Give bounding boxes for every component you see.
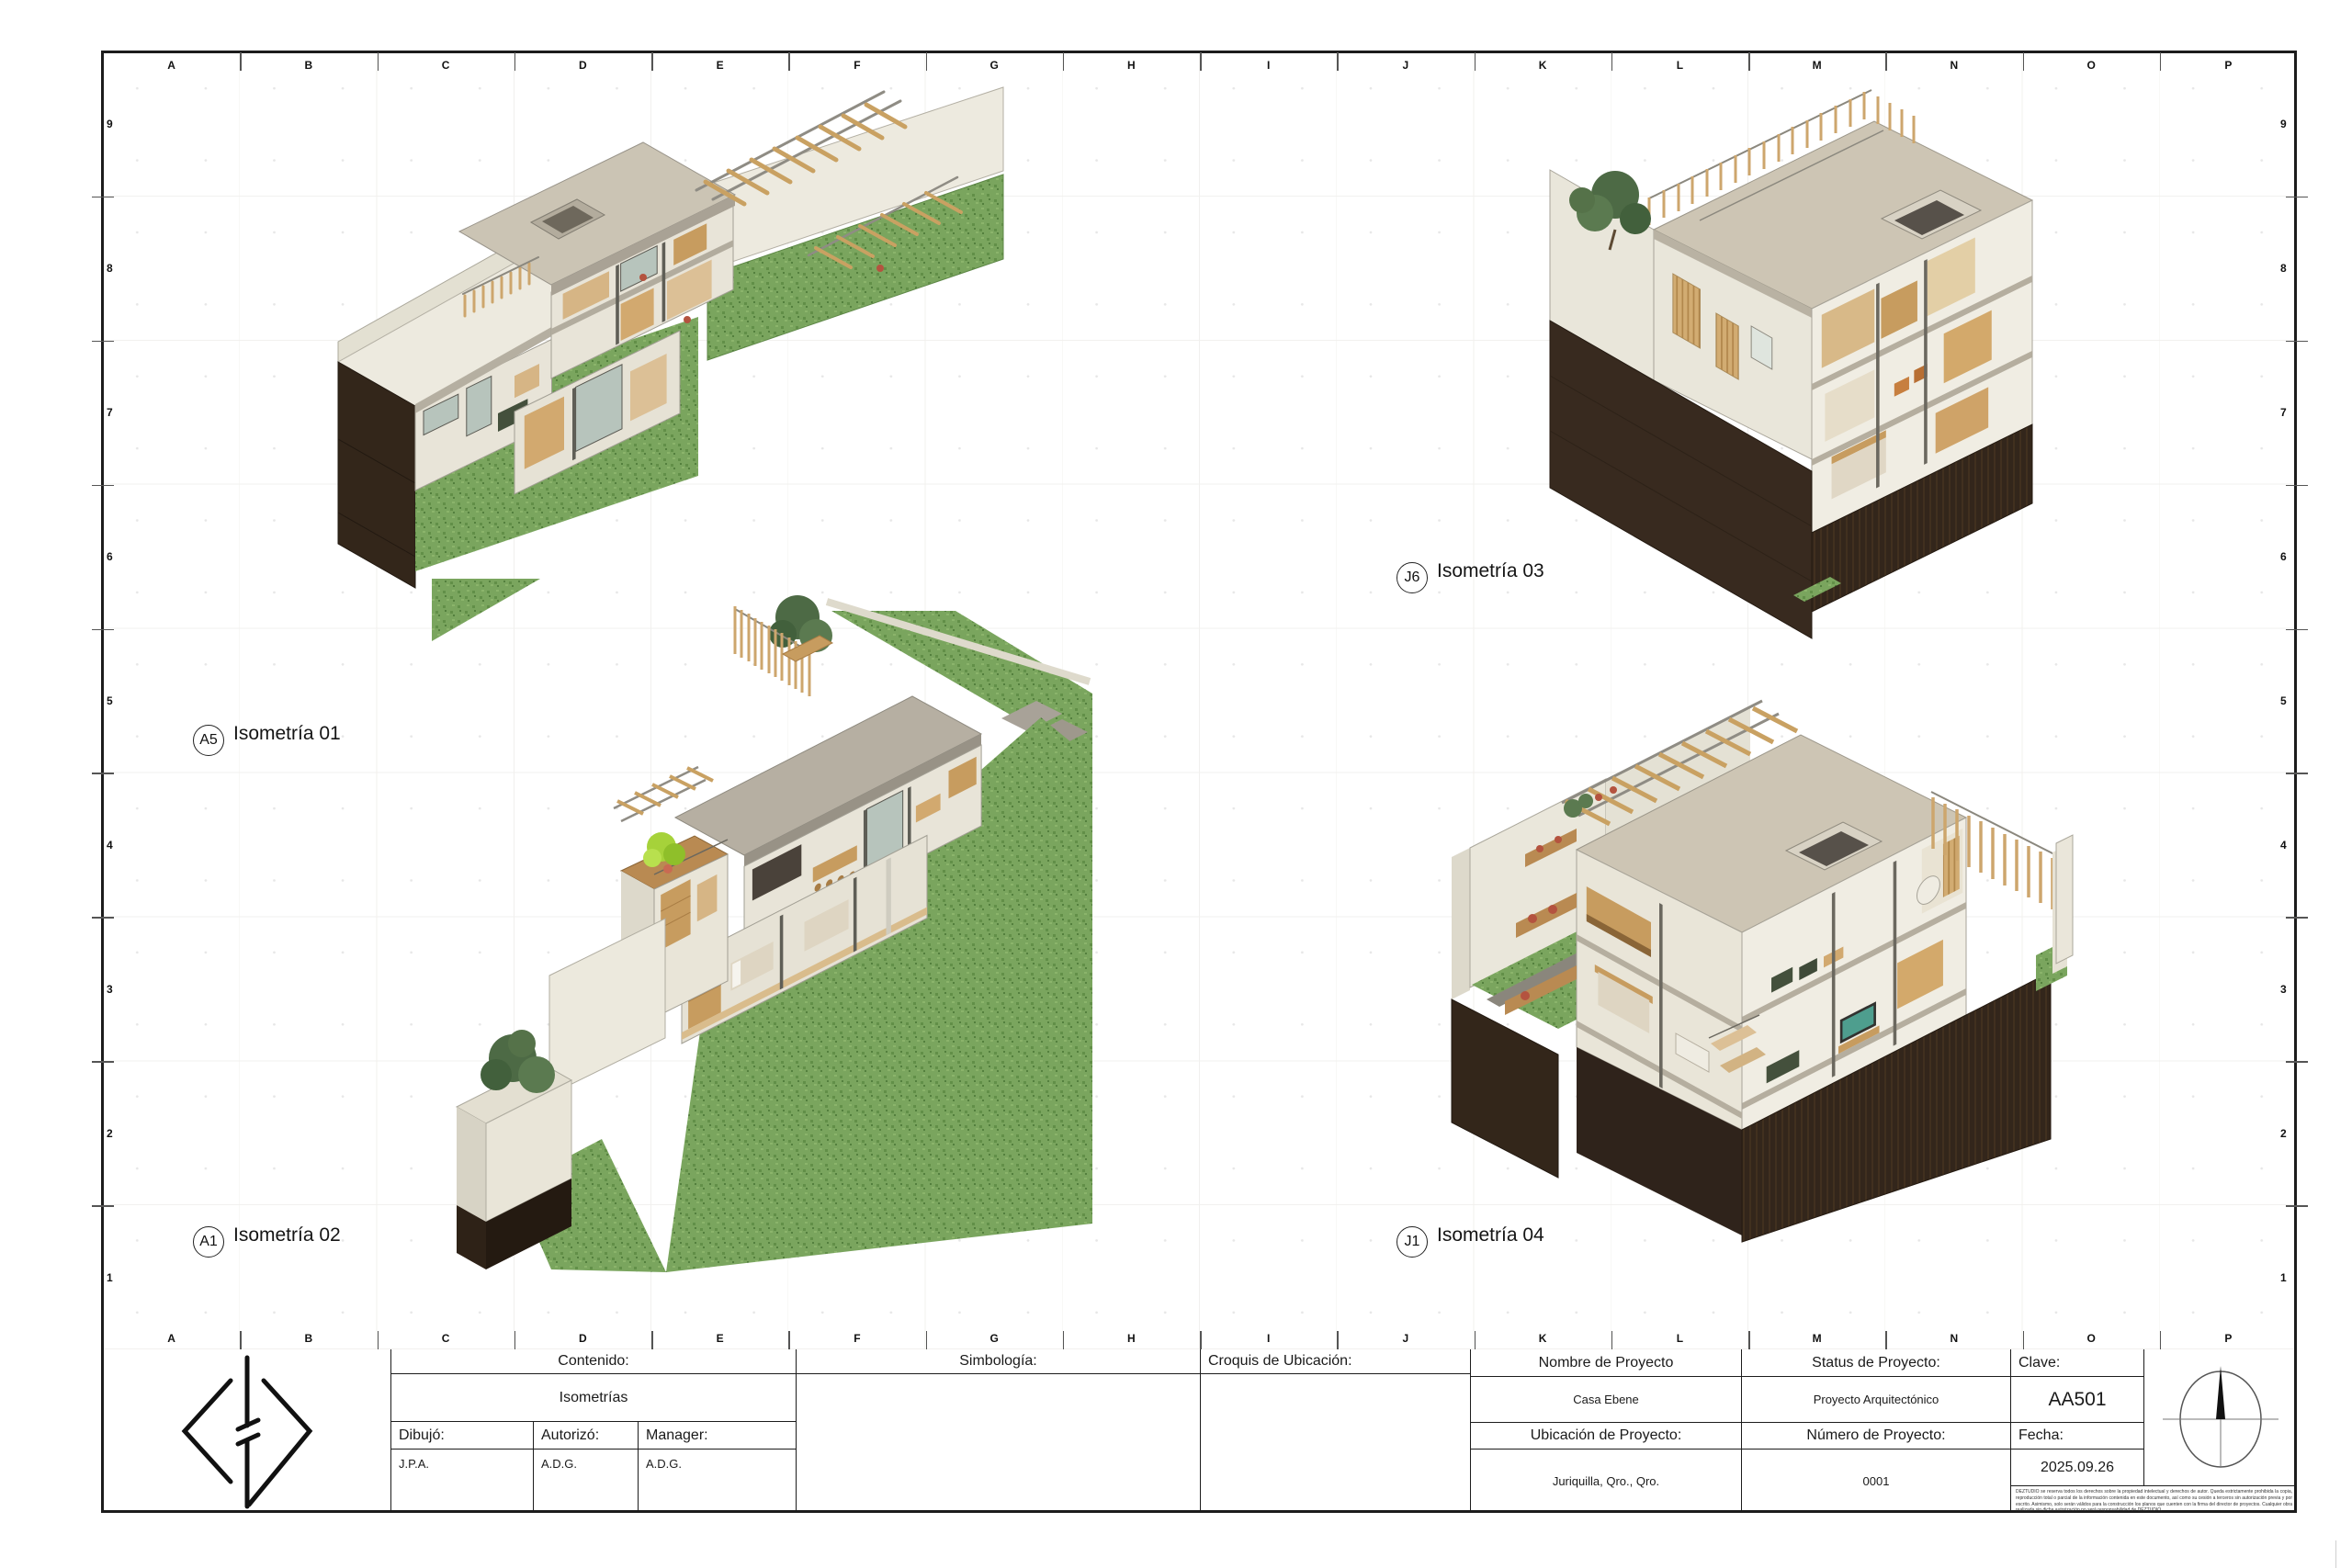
grid-row-number-left: 6 <box>107 550 113 563</box>
clave-value: AA501 <box>2010 1377 2143 1423</box>
grid-row-number-left: 9 <box>107 118 113 130</box>
grid-column-letter-bottom: B <box>305 1332 313 1345</box>
view-title-isometria-03: Isometría 03 <box>1437 560 1544 582</box>
grid-tick-bottom <box>926 1331 928 1349</box>
grid-tick-top <box>1475 52 1476 71</box>
grid-tick-bottom <box>2160 1331 2162 1349</box>
grid-tick-top <box>1748 52 1750 71</box>
grid-column-letter-top: B <box>305 59 313 72</box>
grid-tick-top <box>514 52 516 71</box>
grid-column-letter-top: A <box>167 59 175 72</box>
grid-row-number-right: 3 <box>2280 983 2287 996</box>
grid-tick-bottom <box>651 1331 653 1349</box>
sheet-border-frame <box>101 51 2297 1513</box>
grid-tick-top <box>1337 52 1339 71</box>
north-arrow-icon <box>2144 1349 2298 1485</box>
view-tag-a1: A1 <box>193 1226 224 1258</box>
grid-tick-left <box>92 629 114 631</box>
grid-row-number-right: 7 <box>2280 406 2287 419</box>
grid-column-letter-bottom: J <box>1403 1332 1409 1345</box>
grid-tick-bottom <box>1337 1331 1339 1349</box>
grid-row-number-left: 4 <box>107 839 113 852</box>
view-label-isometria-02: A1 Isometría 02 <box>193 1226 341 1258</box>
view-tag-j1: J1 <box>1396 1226 1428 1258</box>
grid-tick-left <box>92 773 114 774</box>
grid-column-letter-top: M <box>1813 59 1822 72</box>
ubicacion-label: Ubicación de Proyecto: <box>1470 1423 1741 1450</box>
grid-column-letter-bottom: G <box>989 1332 998 1345</box>
view-label-isometria-01: A5 Isometría 01 <box>193 725 341 756</box>
view-tag-a5: A5 <box>193 725 224 756</box>
grid-tick-right <box>2286 341 2308 343</box>
nombre-proyecto-label: Nombre de Proyecto <box>1470 1349 1741 1377</box>
status-proyecto-label: Status de Proyecto: <box>1741 1349 2010 1377</box>
view-title-isometria-01: Isometría 01 <box>233 723 341 745</box>
grid-tick-top <box>1885 52 1887 71</box>
grid-tick-right <box>2286 917 2308 919</box>
view-title-isometria-04: Isometría 04 <box>1437 1224 1544 1247</box>
grid-column-letter-top: H <box>1127 59 1136 72</box>
grid-tick-top <box>926 52 928 71</box>
grid-row-number-left: 5 <box>107 694 113 707</box>
grid-column-letter-top: N <box>1951 59 1959 72</box>
grid-tick-top <box>1200 52 1202 71</box>
numero-proyecto-label: Número de Proyecto: <box>1741 1423 2010 1450</box>
copyright-disclaimer: DEZTUDIO se reserva todos los derechos s… <box>2010 1486 2297 1513</box>
grid-row-number-right: 9 <box>2280 118 2287 130</box>
numero-proyecto-value: 0001 <box>1741 1450 2010 1513</box>
simbologia-label: Simbología: <box>796 1349 1200 1374</box>
grid-column-letter-top: J <box>1403 59 1409 72</box>
page-edge-line <box>2335 1540 2336 1568</box>
grid-tick-bottom <box>1200 1331 1202 1349</box>
manager-label: Manager: <box>638 1422 796 1450</box>
contenido-value: Isometrías <box>390 1374 796 1422</box>
autorizo-label: Autorizó: <box>533 1422 638 1450</box>
grid-tick-top <box>2023 52 2025 71</box>
grid-column-letter-top: I <box>1267 59 1270 72</box>
simbologia-area <box>796 1374 1200 1513</box>
grid-column-letter-bottom: L <box>1677 1332 1683 1345</box>
grid-tick-right <box>2286 1061 2308 1063</box>
grid-tick-left <box>92 197 114 198</box>
grid-tick-top <box>788 52 790 71</box>
fecha-label: Fecha: <box>2010 1423 2143 1450</box>
grid-row-number-left: 2 <box>107 1127 113 1140</box>
grid-tick-bottom <box>1885 1331 1887 1349</box>
clave-label: Clave: <box>2010 1349 2143 1377</box>
grid-column-letter-bottom: C <box>442 1332 450 1345</box>
grid-tick-bottom <box>2023 1331 2025 1349</box>
grid-tick-right <box>2286 629 2308 631</box>
grid-tick-top <box>1063 52 1065 71</box>
grid-tick-top <box>651 52 653 71</box>
grid-row-number-right: 8 <box>2280 262 2287 275</box>
grid-row-number-right: 2 <box>2280 1127 2287 1140</box>
grid-column-letter-bottom: I <box>1267 1332 1270 1345</box>
grid-tick-left <box>92 485 114 487</box>
grid-tick-right <box>2286 197 2308 198</box>
grid-column-letter-bottom: P <box>2224 1332 2232 1345</box>
grid-tick-bottom <box>1748 1331 1750 1349</box>
croquis-label: Croquis de Ubicación: <box>1200 1349 1470 1374</box>
grid-column-letter-bottom: A <box>167 1332 175 1345</box>
grid-tick-right <box>2286 1205 2308 1207</box>
grid-row-number-right: 4 <box>2280 839 2287 852</box>
grid-tick-bottom <box>1611 1331 1613 1349</box>
dibujo-value: J.P.A. <box>390 1450 533 1513</box>
firm-logo <box>103 1349 390 1513</box>
grid-row-number-left: 3 <box>107 983 113 996</box>
grid-tick-top <box>2160 52 2162 71</box>
grid-column-letter-top: O <box>2086 59 2095 72</box>
grid-tick-left <box>92 1061 114 1063</box>
view-title-isometria-02: Isometría 02 <box>233 1224 341 1247</box>
grid-row-number-left: 1 <box>107 1271 113 1284</box>
grid-tick-top <box>1611 52 1613 71</box>
nombre-proyecto-value: Casa Ebene <box>1470 1377 1741 1423</box>
grid-column-letter-bottom: F <box>854 1332 860 1345</box>
grid-tick-right <box>2286 485 2308 487</box>
grid-column-letter-bottom: O <box>2086 1332 2095 1345</box>
grid-column-letter-top: E <box>717 59 724 72</box>
grid-tick-bottom <box>378 1331 379 1349</box>
ubicacion-value: Juriquilla, Qro., Qro. <box>1470 1450 1741 1513</box>
grid-column-letter-top: D <box>579 59 587 72</box>
fecha-value: 2025.09.26 <box>2010 1450 2143 1486</box>
manager-value: A.D.G. <box>638 1450 796 1513</box>
north-arrow-cell <box>2143 1349 2297 1486</box>
grid-tick-left <box>92 341 114 343</box>
grid-column-letter-top: L <box>1677 59 1683 72</box>
view-label-isometria-04: J1 Isometría 04 <box>1396 1226 1544 1258</box>
croquis-area <box>1200 1374 1470 1513</box>
view-label-isometria-03: J6 Isometría 03 <box>1396 562 1544 593</box>
diamond-brackets-logo-icon <box>160 1348 334 1514</box>
grid-column-letter-bottom: K <box>1539 1332 1547 1345</box>
contenido-label: Contenido: <box>390 1349 796 1374</box>
grid-tick-bottom <box>514 1331 516 1349</box>
grid-column-letter-bottom: D <box>579 1332 587 1345</box>
grid-tick-top <box>240 52 242 71</box>
grid-tick-left <box>92 1205 114 1207</box>
grid-column-letter-bottom: H <box>1127 1332 1136 1345</box>
grid-column-letter-top: K <box>1539 59 1547 72</box>
grid-tick-right <box>2286 773 2308 774</box>
grid-tick-bottom <box>240 1331 242 1349</box>
autorizo-value: A.D.G. <box>533 1450 638 1513</box>
grid-column-letter-bottom: M <box>1813 1332 1822 1345</box>
grid-row-number-right: 5 <box>2280 694 2287 707</box>
grid-column-letter-bottom: E <box>717 1332 724 1345</box>
view-tag-j6: J6 <box>1396 562 1428 593</box>
grid-tick-left <box>92 917 114 919</box>
grid-tick-top <box>378 52 379 71</box>
status-proyecto-value: Proyecto Arquitectónico <box>1741 1377 2010 1423</box>
sheet-background: { "sheet": { "grid": { "columns": ["A","… <box>0 0 2352 1568</box>
grid-tick-bottom <box>1475 1331 1476 1349</box>
grid-column-letter-bottom: N <box>1951 1332 1959 1345</box>
grid-row-number-left: 7 <box>107 406 113 419</box>
grid-column-letter-top: F <box>854 59 860 72</box>
grid-column-letter-top: C <box>442 59 450 72</box>
grid-column-letter-top: G <box>989 59 998 72</box>
grid-row-number-left: 8 <box>107 262 113 275</box>
grid-row-number-right: 6 <box>2280 550 2287 563</box>
grid-row-number-right: 1 <box>2280 1271 2287 1284</box>
grid-column-letter-top: P <box>2224 59 2232 72</box>
grid-tick-bottom <box>1063 1331 1065 1349</box>
grid-tick-bottom <box>788 1331 790 1349</box>
dibujo-label: Dibujó: <box>390 1422 533 1450</box>
